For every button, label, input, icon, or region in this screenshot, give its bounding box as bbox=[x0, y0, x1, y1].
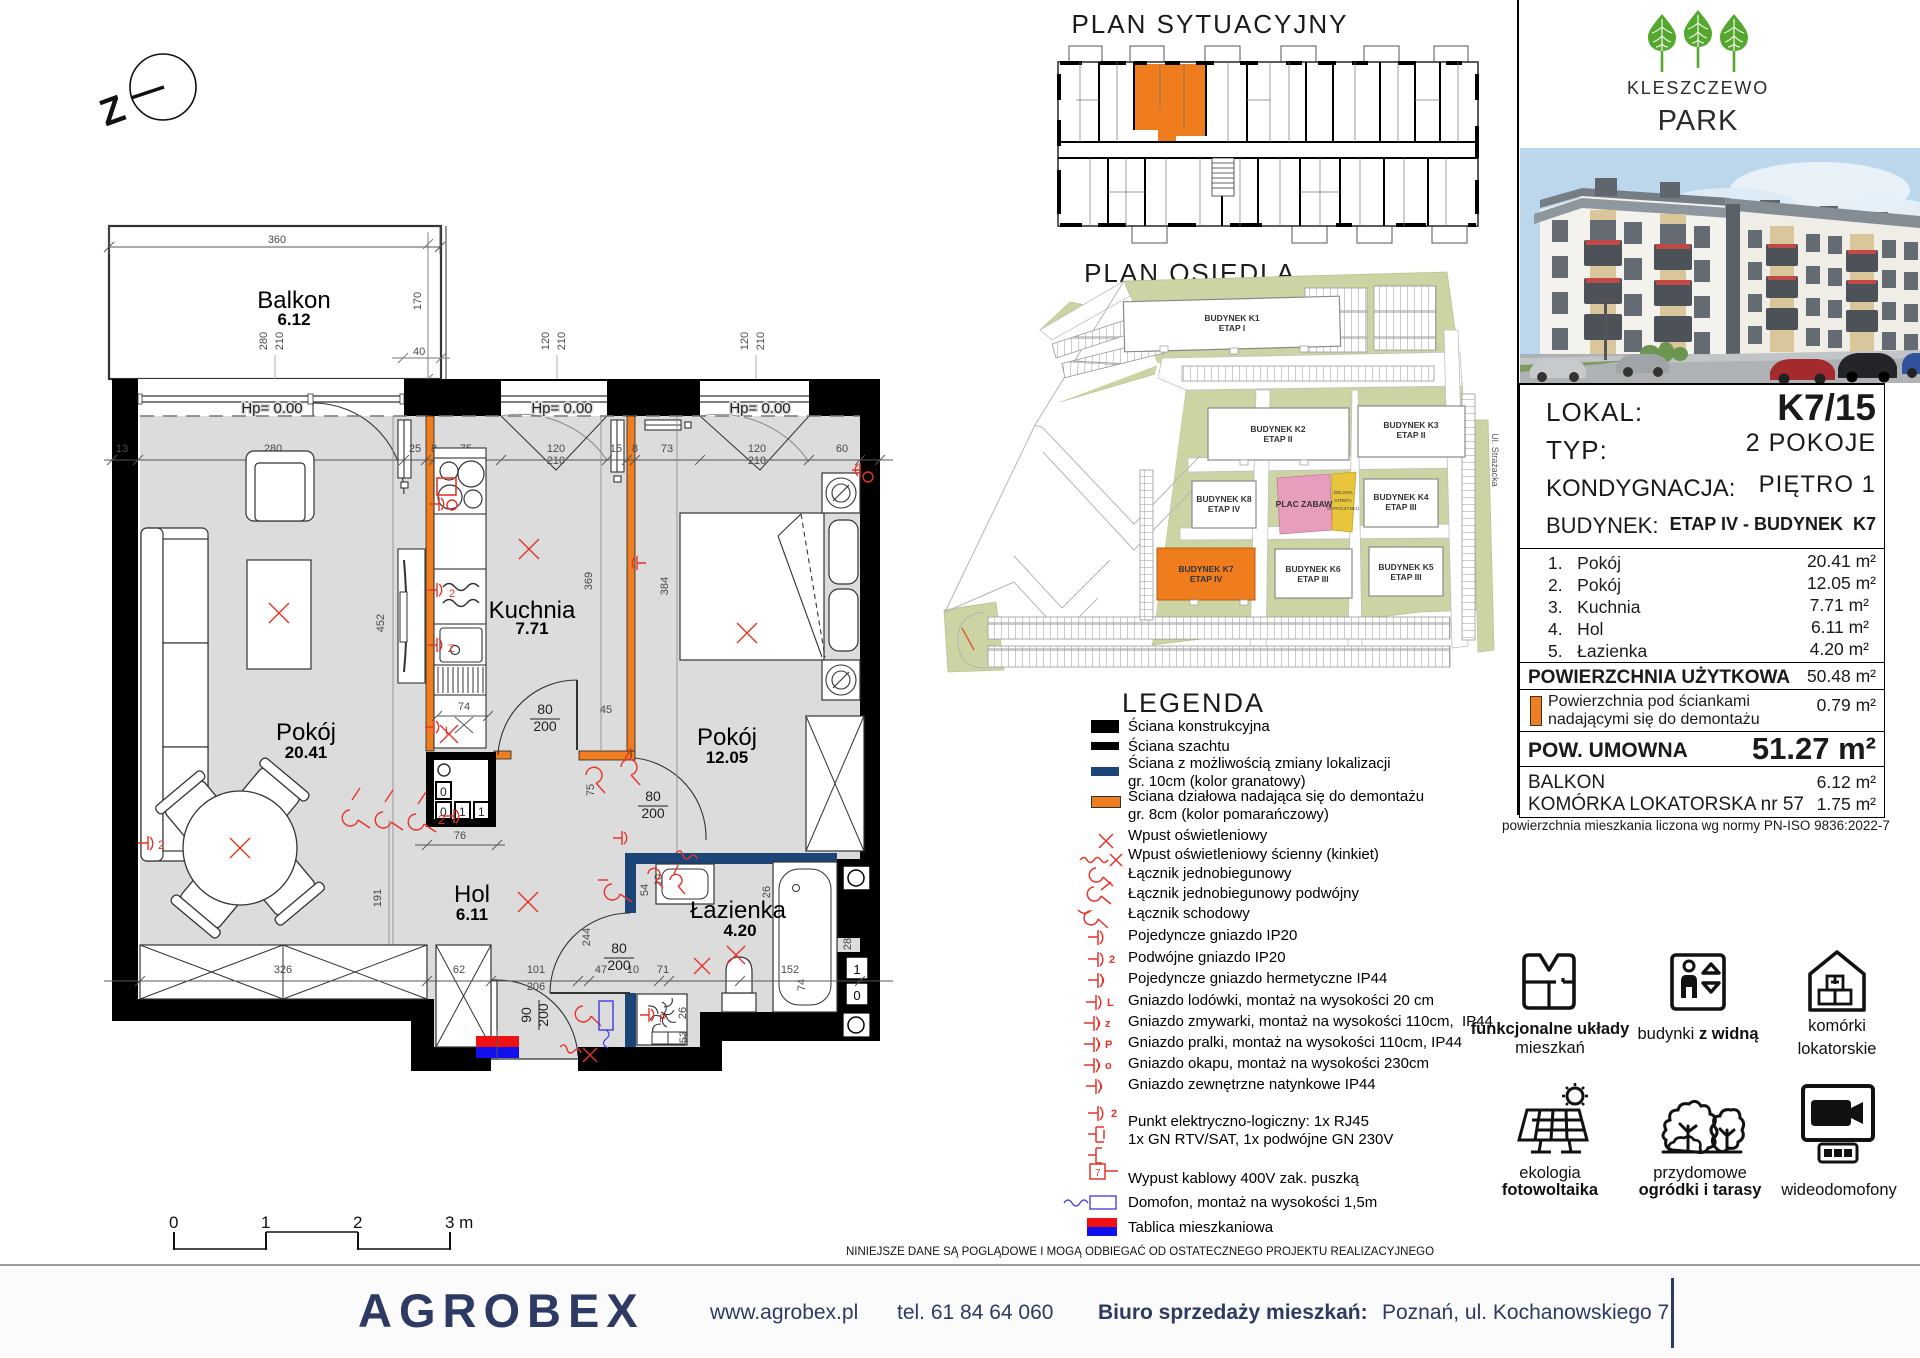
svg-text:360: 360 bbox=[268, 234, 286, 246]
svg-text:75: 75 bbox=[585, 784, 597, 796]
svg-text:Z: Z bbox=[94, 88, 130, 135]
svg-text:60: 60 bbox=[836, 443, 848, 455]
svg-text:120: 120 bbox=[540, 332, 552, 350]
svg-text:0: 0 bbox=[169, 1213, 178, 1232]
svg-text:o: o bbox=[1105, 1060, 1112, 1072]
svg-text:120: 120 bbox=[547, 443, 565, 455]
svg-text:71: 71 bbox=[657, 964, 669, 976]
svg-text:BUDYNEK K4: BUDYNEK K4 bbox=[1373, 492, 1429, 502]
svg-text:PLAN SYTUACYJNY: PLAN SYTUACYJNY bbox=[1071, 9, 1348, 39]
svg-text:25: 25 bbox=[409, 443, 421, 455]
svg-text:2: 2 bbox=[449, 588, 455, 600]
svg-text:BUDYNEK K1: BUDYNEK K1 bbox=[1204, 313, 1260, 323]
svg-text:PLAC ZABAW: PLAC ZABAW bbox=[1276, 499, 1334, 509]
svg-text:170: 170 bbox=[412, 292, 424, 310]
svg-text:53: 53 bbox=[678, 1031, 690, 1043]
svg-text:BUDYNEK K7: BUDYNEK K7 bbox=[1178, 564, 1234, 574]
svg-text:120: 120 bbox=[748, 443, 766, 455]
svg-text:47: 47 bbox=[595, 964, 607, 976]
svg-text:ETAP IV: ETAP IV bbox=[1208, 504, 1241, 514]
svg-text:45: 45 bbox=[600, 704, 612, 716]
svg-text:0: 0 bbox=[440, 785, 447, 799]
svg-text:80: 80 bbox=[537, 701, 553, 717]
svg-text:ETAP II: ETAP II bbox=[1397, 430, 1426, 440]
svg-text:54: 54 bbox=[639, 884, 651, 896]
svg-text:210: 210 bbox=[748, 455, 766, 467]
svg-text:3 m: 3 m bbox=[445, 1213, 473, 1232]
svg-text:ETAP III: ETAP III bbox=[1297, 574, 1328, 584]
svg-text:326: 326 bbox=[274, 964, 292, 976]
svg-text:20.41: 20.41 bbox=[285, 743, 328, 762]
svg-text:191: 191 bbox=[372, 889, 384, 907]
svg-text:206: 206 bbox=[527, 981, 545, 993]
svg-text:40: 40 bbox=[413, 346, 425, 358]
svg-text:6.11: 6.11 bbox=[456, 905, 488, 924]
svg-text:6.12: 6.12 bbox=[277, 310, 310, 329]
svg-text:12.05: 12.05 bbox=[706, 748, 749, 767]
svg-text:P: P bbox=[1105, 1039, 1112, 1051]
svg-text:369: 369 bbox=[583, 572, 595, 590]
svg-text:Pokój: Pokój bbox=[276, 719, 336, 746]
svg-text:2: 2 bbox=[1111, 1108, 1117, 1120]
svg-text:Hol: Hol bbox=[454, 881, 490, 908]
svg-text:BUDYNEK K6: BUDYNEK K6 bbox=[1285, 564, 1341, 574]
svg-text:ETAP III: ETAP III bbox=[1385, 502, 1416, 512]
svg-text:Hp= 0.00: Hp= 0.00 bbox=[729, 400, 790, 417]
svg-text:210: 210 bbox=[755, 332, 767, 350]
svg-text:Łazienka: Łazienka bbox=[690, 897, 787, 924]
svg-text:28: 28 bbox=[842, 938, 854, 950]
svg-text:Hp= 0.00: Hp= 0.00 bbox=[531, 400, 592, 417]
svg-text:62: 62 bbox=[453, 964, 465, 976]
svg-text:BUDYNEK K2: BUDYNEK K2 bbox=[1250, 424, 1306, 434]
svg-text:152: 152 bbox=[781, 964, 799, 976]
svg-text:ETAP I: ETAP I bbox=[1219, 323, 1246, 333]
svg-text:KLESZCZEWO: KLESZCZEWO bbox=[1627, 78, 1769, 98]
svg-text:BUDYNEK K5: BUDYNEK K5 bbox=[1378, 562, 1434, 572]
svg-text:200: 200 bbox=[607, 957, 631, 973]
svg-text:74: 74 bbox=[458, 701, 470, 713]
svg-text:Ul. Strażacka: Ul. Strażacka bbox=[1490, 433, 1500, 487]
svg-text:L: L bbox=[1107, 997, 1114, 1009]
svg-text:Z: Z bbox=[448, 643, 455, 655]
svg-text:4.20: 4.20 bbox=[723, 921, 756, 940]
svg-text:13: 13 bbox=[116, 443, 128, 455]
svg-text:1: 1 bbox=[478, 805, 485, 819]
svg-text:ETAP II: ETAP II bbox=[1264, 434, 1293, 444]
svg-text:ETAP III: ETAP III bbox=[1390, 572, 1421, 582]
svg-text:PARK: PARK bbox=[1658, 105, 1739, 137]
svg-text:2: 2 bbox=[353, 1213, 362, 1232]
svg-text:2: 2 bbox=[438, 812, 445, 827]
svg-text:280: 280 bbox=[258, 332, 270, 350]
svg-text:7.71: 7.71 bbox=[515, 619, 548, 638]
svg-text:8: 8 bbox=[632, 443, 638, 455]
svg-text:ETAP IV: ETAP IV bbox=[1190, 574, 1223, 584]
svg-text:WYPOCZYNKU: WYPOCZYNKU bbox=[1327, 506, 1359, 511]
svg-text:200: 200 bbox=[533, 718, 557, 734]
svg-text:244: 244 bbox=[581, 928, 593, 946]
svg-text:ZIELONA: ZIELONA bbox=[1333, 490, 1352, 495]
svg-text:210: 210 bbox=[547, 455, 565, 467]
svg-text:26: 26 bbox=[677, 1007, 689, 1019]
svg-text:STREFA: STREFA bbox=[1334, 498, 1352, 503]
svg-text:1: 1 bbox=[459, 805, 466, 819]
svg-text:z: z bbox=[1105, 1018, 1111, 1030]
svg-text:7: 7 bbox=[1095, 1168, 1101, 1179]
svg-text:76: 76 bbox=[454, 830, 466, 842]
svg-text:0: 0 bbox=[853, 988, 860, 1003]
svg-text:384: 384 bbox=[659, 577, 671, 595]
svg-text:210: 210 bbox=[274, 332, 286, 350]
svg-text:1: 1 bbox=[261, 1213, 270, 1232]
svg-text:80: 80 bbox=[645, 788, 661, 804]
svg-text:452: 452 bbox=[375, 614, 387, 632]
svg-text:90: 90 bbox=[518, 1007, 534, 1023]
svg-text:210: 210 bbox=[556, 332, 568, 350]
svg-text:80: 80 bbox=[611, 940, 627, 956]
svg-text:BUDYNEK K3: BUDYNEK K3 bbox=[1383, 420, 1439, 430]
svg-text:Hp= 0.00: Hp= 0.00 bbox=[241, 400, 302, 417]
svg-text:1: 1 bbox=[853, 962, 860, 977]
svg-text:200: 200 bbox=[535, 1003, 551, 1027]
svg-text:Pokój: Pokój bbox=[697, 724, 757, 751]
svg-text:2: 2 bbox=[1109, 954, 1115, 966]
svg-text:2: 2 bbox=[158, 838, 165, 852]
svg-text:BUDYNEK K8: BUDYNEK K8 bbox=[1196, 494, 1252, 504]
svg-text:73: 73 bbox=[661, 443, 673, 455]
svg-text:P: P bbox=[659, 1013, 666, 1025]
svg-text:15: 15 bbox=[610, 443, 622, 455]
svg-text:120: 120 bbox=[739, 332, 751, 350]
svg-text:200: 200 bbox=[641, 805, 665, 821]
